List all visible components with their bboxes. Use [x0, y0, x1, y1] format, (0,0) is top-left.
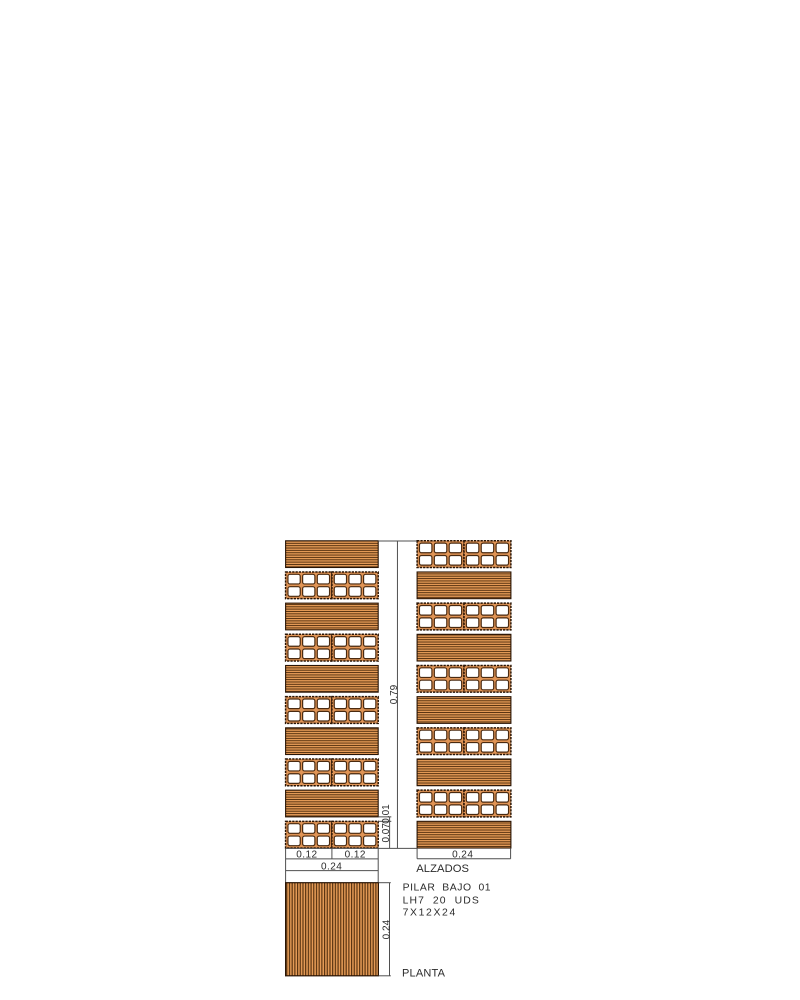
svg-text:LH7 20 UDS: LH7 20 UDS [403, 896, 480, 907]
svg-text:0.24: 0.24 [452, 850, 473, 861]
svg-text:0.24: 0.24 [381, 919, 392, 939]
svg-text:PILAR BAJO 01: PILAR BAJO 01 [403, 883, 492, 894]
svg-text:0.07: 0.07 [381, 823, 392, 843]
svg-text:0.12: 0.12 [296, 850, 317, 861]
svg-text:0.01: 0.01 [381, 804, 392, 824]
svg-text:0.12: 0.12 [345, 850, 366, 861]
svg-text:ALZADOS: ALZADOS [416, 863, 469, 875]
svg-text:PLANTA: PLANTA [402, 968, 446, 980]
svg-text:0.24: 0.24 [321, 862, 342, 873]
svg-text:7X12X24: 7X12X24 [403, 908, 457, 919]
svg-text:0.79: 0.79 [389, 684, 400, 704]
